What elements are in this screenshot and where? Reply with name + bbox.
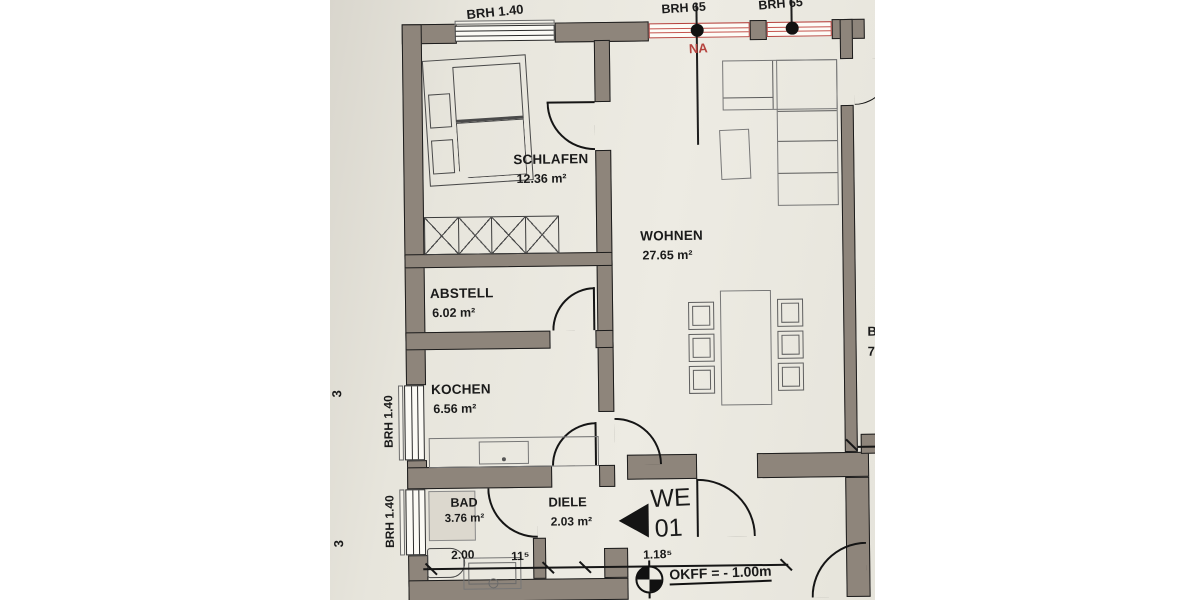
partial-dimension-left-top: 3: [330, 390, 343, 397]
area-label-diele: 2.03 m²: [551, 515, 593, 528]
dimension-label-wall: 11⁵: [511, 550, 530, 563]
room-label-schlafen: SCHLAFEN: [513, 152, 588, 166]
room-label-kochen: KOCHEN: [431, 382, 491, 396]
chair: [688, 302, 714, 330]
window-sill-bad: [399, 489, 405, 555]
window-schlafen: [455, 25, 555, 42]
sink-drain-dot: [502, 457, 506, 461]
door-leaf-abstell: [593, 287, 596, 330]
chair: [777, 299, 803, 327]
wall-abstell-kochen-right: [595, 330, 613, 348]
wall-divider-main: [595, 150, 614, 412]
floorplan-photo: BRH 1.40 BRH 65 BRH 65 NA BRH 1.40 BRH 1…: [330, 0, 875, 600]
wardrobe: [424, 216, 559, 256]
door-arc-bad: [487, 488, 538, 539]
nightstand: [431, 139, 455, 174]
dining-table: [720, 290, 772, 406]
wardrobe-cell: [524, 217, 558, 253]
brh-label-wohnen-window-right: BRH 65: [758, 0, 803, 12]
entrance-marker-triangle: [618, 503, 648, 537]
dimension-label-bad-width: 2.00: [451, 548, 475, 561]
area-label-abstell: 6.02 m²: [432, 307, 475, 320]
brh-label-bad-window: BRH 1.40: [383, 487, 396, 557]
wardrobe-cell: [425, 218, 458, 254]
level-note: OKFF = - 1.00m: [669, 564, 772, 586]
partial-area-label-right: 7: [868, 345, 875, 358]
floorplan-drawing: BRH 1.40 BRH 65 BRH 65 NA BRH 1.40 BRH 1…: [330, 0, 875, 600]
unit-label-01: 01: [654, 516, 683, 542]
rightroom-dimension-line: [858, 446, 875, 448]
wall-diele-right-pier: [604, 548, 628, 578]
level-benchmark-tick: [648, 560, 650, 566]
wall-abstell-kochen-left: [405, 331, 550, 351]
bed-mattress-lower: [456, 119, 527, 179]
level-benchmark-tick: [649, 592, 651, 598]
partial-room-label-right: B: [867, 325, 875, 338]
wall-rightroom-bottom: [861, 434, 875, 454]
window-sill-kochen: [398, 385, 404, 460]
unit-label-we: WE: [650, 485, 691, 512]
door-arc-schlafen: [547, 102, 596, 151]
screenshot: BRH 1.40 BRH 65 BRH 65 NA BRH 1.40 BRH 1…: [0, 0, 1200, 600]
room-label-bad: BAD: [450, 497, 477, 510]
window-wohnen-right: [767, 21, 832, 37]
wall-divider-upper: [594, 40, 611, 102]
room-label-abstell: ABSTELL: [430, 286, 494, 300]
area-label-kochen: 6.56 m²: [433, 403, 476, 416]
chair: [689, 366, 715, 394]
chair: [688, 334, 714, 362]
brh-label-wohnen-window-left: BRH 65: [661, 1, 706, 16]
wall-right-upper: [840, 19, 853, 59]
area-label-schlafen: 12.36 m²: [516, 172, 566, 185]
window-vent-dot-left: [691, 24, 704, 37]
na-label: NA: [689, 41, 708, 55]
sofa-right-section: [776, 59, 839, 206]
room-label-wohnen: WOHNEN: [640, 229, 703, 243]
brh-label-kochen-window: BRH 1.40: [382, 387, 395, 457]
coffee-table: [719, 129, 751, 180]
door-arc-entry: [697, 478, 756, 537]
brh-label-schlafen-window: BRH 1.40: [466, 2, 524, 21]
room-label-diele: DIELE: [548, 495, 586, 508]
dimension-label-diele-width: 1.18⁵: [643, 548, 672, 561]
door-arc-hall: [811, 542, 867, 598]
door-arc-abstell: [552, 287, 596, 331]
partial-dimension-left-bottom: 3: [332, 540, 345, 547]
window-bad: [405, 489, 426, 555]
window-kochen: [404, 385, 425, 460]
door-arc-right-room: [854, 58, 875, 104]
nightstand: [428, 93, 452, 128]
level-benchmark-icon: [635, 565, 663, 593]
area-label-wohnen: 27.65 m²: [642, 249, 692, 262]
window-vent-dot-right: [786, 22, 799, 35]
wall-kochen-bottom-right: [599, 465, 615, 487]
wall-kochen-bottom-left: [407, 466, 552, 490]
door-arc-wohnen: [614, 417, 662, 465]
wardrobe-cell: [457, 217, 491, 253]
area-label-bad: 3.76 m²: [445, 513, 485, 525]
wall-wohnen-bottom-right: [757, 452, 869, 478]
wall-bad-diele-pier: [533, 538, 546, 579]
wall-right-main: [841, 105, 858, 452]
wall-top-pier-b: [750, 20, 767, 40]
chair: [778, 363, 804, 391]
chair: [777, 331, 803, 359]
wardrobe-cell: [491, 217, 525, 253]
bed-mattress-upper: [452, 63, 523, 123]
